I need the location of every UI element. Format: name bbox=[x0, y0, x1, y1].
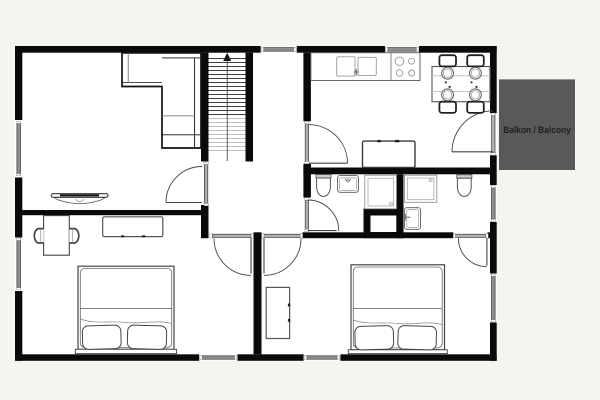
svg-text:Balkon / Balcony: Balkon / Balcony bbox=[503, 124, 571, 135]
